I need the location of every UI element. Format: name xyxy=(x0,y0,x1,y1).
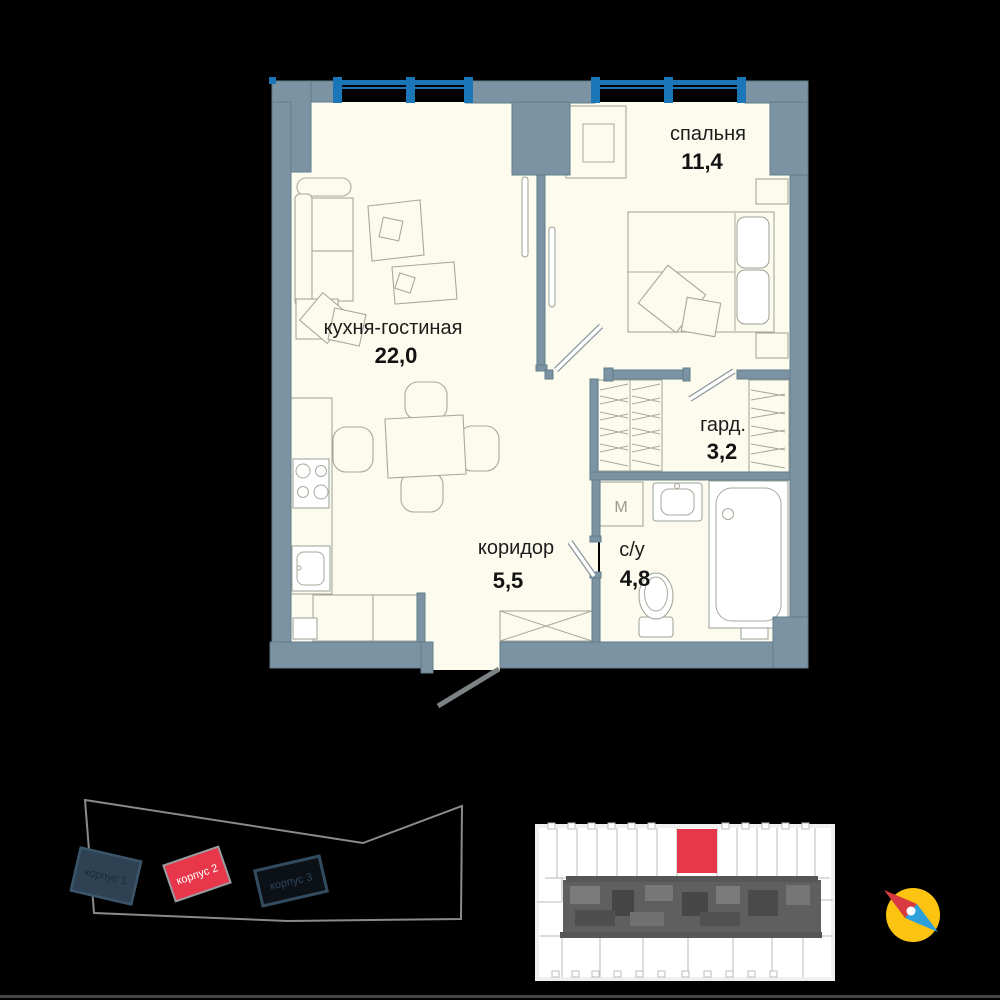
room-label-kitchen: кухня-гостиная xyxy=(324,317,463,339)
bedroom-closet xyxy=(566,106,626,178)
apartment-plan-page: M xyxy=(0,0,1000,1000)
nightstand xyxy=(756,179,788,204)
compass-icon xyxy=(884,888,940,942)
hall-cabinet xyxy=(500,611,592,641)
nightstand xyxy=(756,333,788,358)
room-area-bathroom: 4,8 xyxy=(620,566,651,591)
bathtub xyxy=(709,481,788,628)
stove xyxy=(293,459,329,508)
kitchen-sink xyxy=(292,546,330,591)
bottom-divider xyxy=(0,995,1000,998)
room-label-bathroom: с/у xyxy=(619,539,645,561)
wardrobe-closet-right xyxy=(749,380,789,472)
sliding-panel xyxy=(549,227,555,307)
room-area-corridor: 5,5 xyxy=(493,568,524,593)
floor-key-unit-highlight[interactable] xyxy=(677,829,717,873)
sliding-panel xyxy=(522,177,528,257)
building-korpus-3[interactable]: корпус 3 xyxy=(255,856,327,906)
window-bedroom xyxy=(591,77,746,103)
entry-door-swing xyxy=(438,669,499,706)
room-label-corridor: коридор xyxy=(478,537,554,559)
window-corner-tick xyxy=(269,77,276,84)
radiator xyxy=(293,618,317,639)
site-plan: корпус 1 корпус 2 корпус 3 xyxy=(71,800,462,921)
window-kitchen xyxy=(333,77,473,103)
floor-plan: M xyxy=(269,77,808,706)
bed xyxy=(628,212,774,337)
plan-scene: M xyxy=(0,0,1000,1000)
floor-key-plan xyxy=(537,823,833,979)
floor-key-core xyxy=(560,876,822,938)
room-area-wardrobe: 3,2 xyxy=(707,439,738,464)
room-label-bedroom: спальня xyxy=(670,123,746,145)
kitchen-cabinets xyxy=(313,595,418,641)
room-area-bedroom: 11,4 xyxy=(681,149,723,174)
compass-pivot xyxy=(907,907,916,916)
bathroom-sink xyxy=(653,483,702,521)
room-area-kitchen: 22,0 xyxy=(375,343,418,368)
room-label-wardrobe: гард. xyxy=(700,414,746,436)
washing-machine-symbol: M xyxy=(614,499,627,516)
washing-machine: M xyxy=(600,482,643,526)
building-korpus-2[interactable]: корпус 2 xyxy=(163,847,230,902)
wardrobe-closet-left xyxy=(598,380,662,471)
building-korpus-1[interactable]: корпус 1 xyxy=(71,848,141,905)
